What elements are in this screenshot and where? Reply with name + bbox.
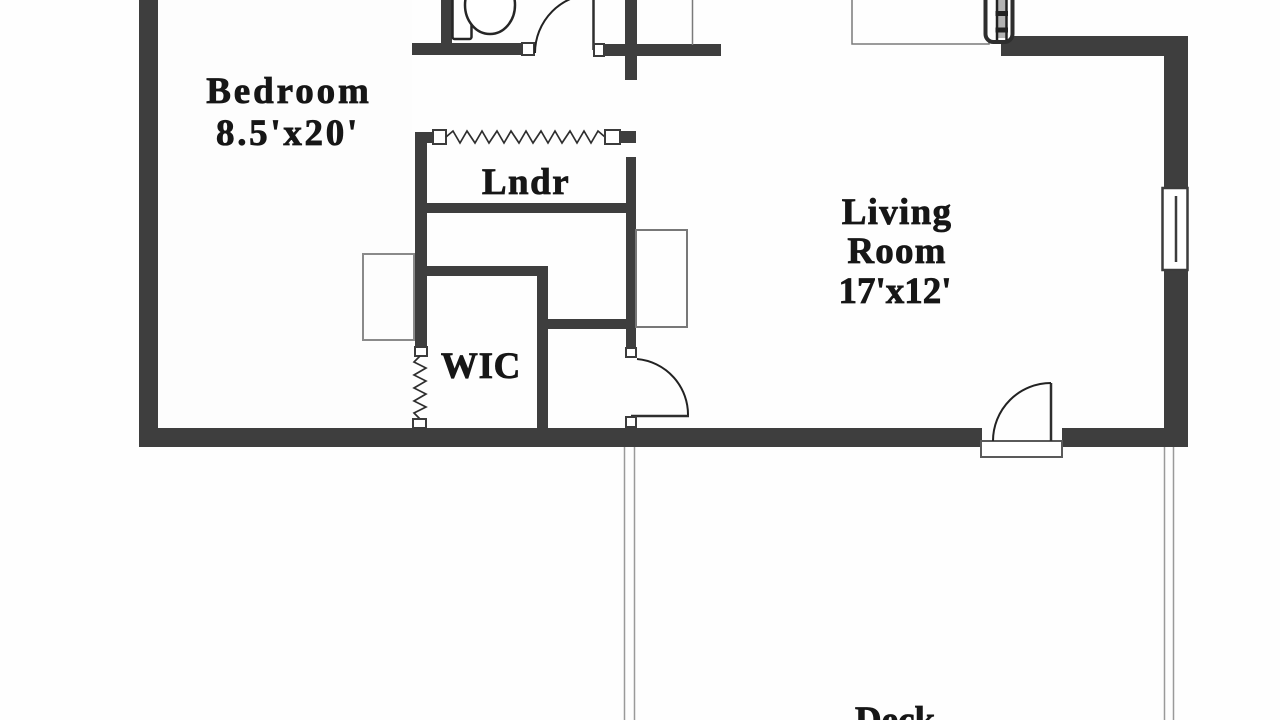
svg-text:WIC: WIC bbox=[441, 346, 521, 387]
svg-text:Living: Living bbox=[842, 192, 953, 233]
svg-text:17'x12': 17'x12' bbox=[838, 271, 951, 312]
svg-text:Room: Room bbox=[847, 231, 946, 272]
svg-text:Deck: Deck bbox=[855, 700, 936, 720]
svg-text:8.5'x20': 8.5'x20' bbox=[216, 113, 360, 154]
svg-text:Lndr: Lndr bbox=[482, 162, 570, 203]
svg-text:Bedroom: Bedroom bbox=[206, 71, 372, 112]
